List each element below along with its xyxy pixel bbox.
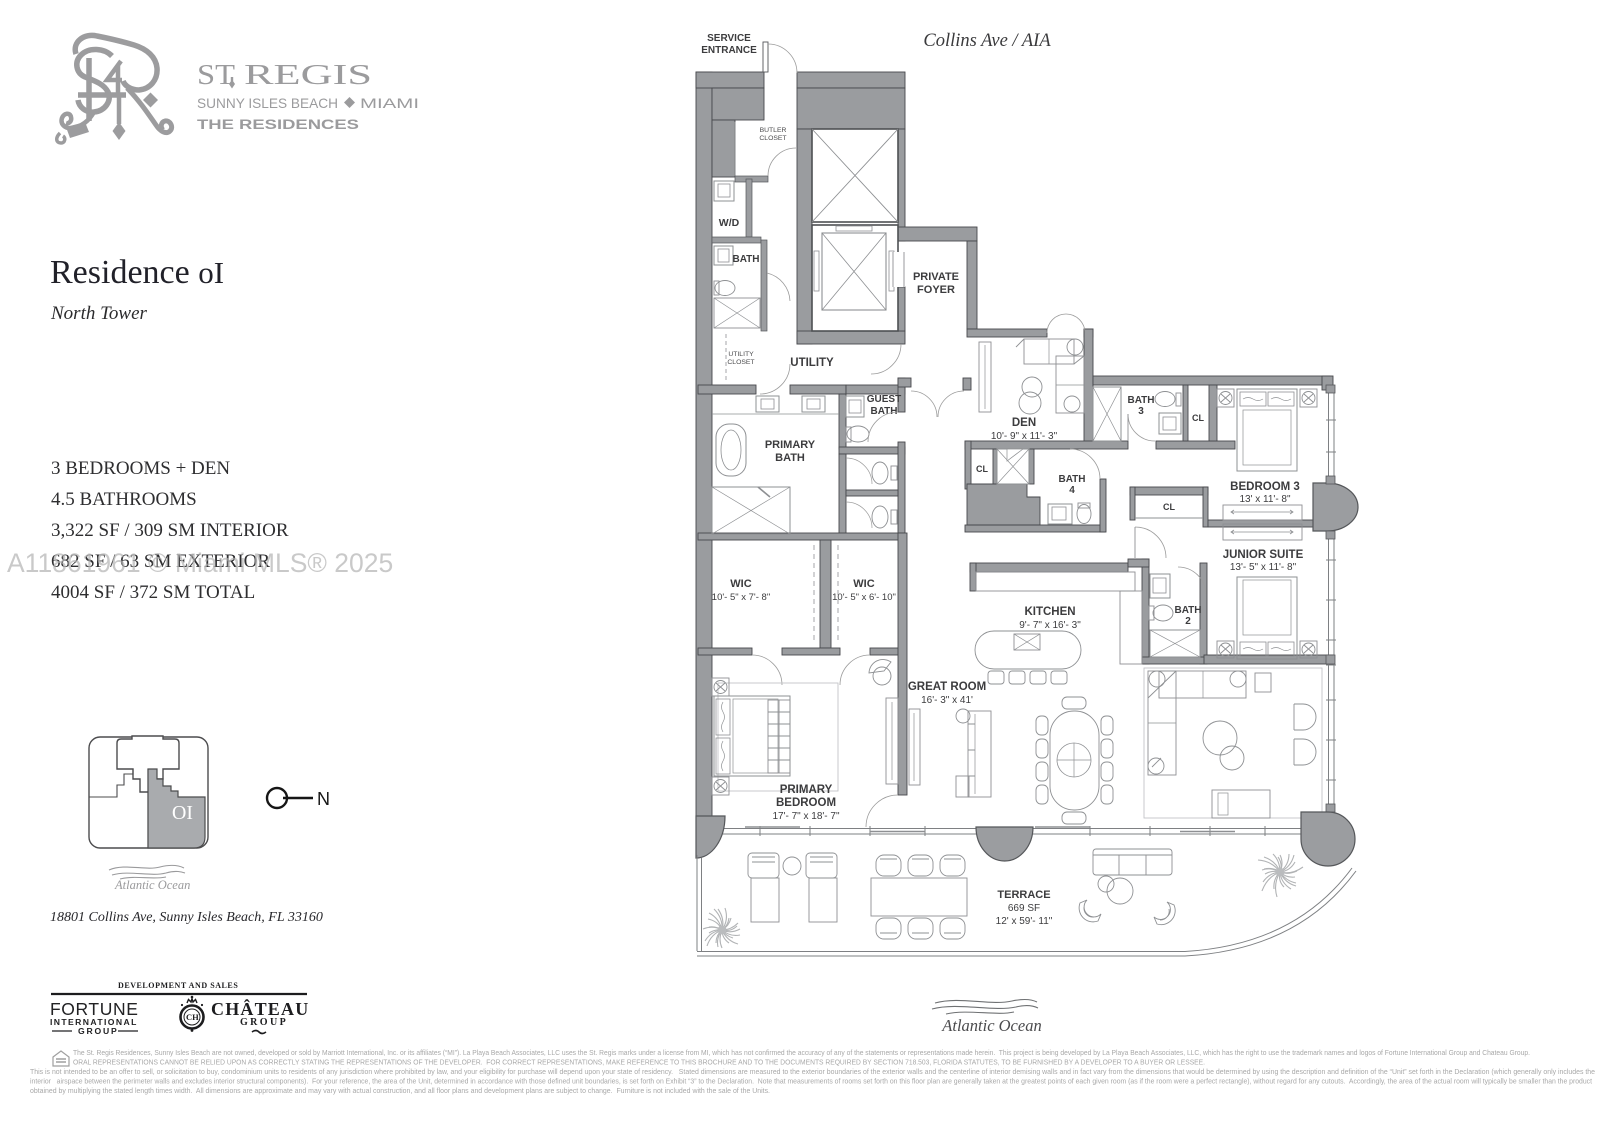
svg-text:MIAMI: MIAMI bbox=[360, 96, 419, 111]
svg-text:Atlantic Ocean: Atlantic Ocean bbox=[114, 878, 190, 892]
svg-text:13'- 5" x 11'- 8": 13'- 5" x 11'- 8" bbox=[1230, 562, 1297, 573]
svg-text:CLOSET: CLOSET bbox=[727, 359, 754, 366]
svg-text:SERVICE: SERVICE bbox=[707, 33, 751, 44]
svg-text:18801 Collins Ave, Sunny Isles: 18801 Collins Ave, Sunny Isles Beach, FL… bbox=[50, 910, 323, 925]
svg-text:Residence oI: Residence oI bbox=[50, 254, 224, 291]
svg-text:N: N bbox=[317, 789, 330, 809]
svg-text:REGIS: REGIS bbox=[244, 60, 372, 91]
svg-text:CL: CL bbox=[1163, 502, 1175, 512]
svg-text:THE RESIDENCES: THE RESIDENCES bbox=[197, 117, 359, 132]
svg-text:CH: CH bbox=[186, 1012, 199, 1022]
svg-text:3: 3 bbox=[1138, 406, 1144, 417]
svg-text:FOYER: FOYER bbox=[917, 284, 955, 296]
svg-text:669 SF: 669 SF bbox=[1008, 903, 1040, 914]
svg-text:CL: CL bbox=[976, 464, 988, 474]
svg-text:12' x 59'- 11": 12' x 59'- 11" bbox=[996, 916, 1053, 927]
svg-text:SUNNY ISLES BEACH: SUNNY ISLES BEACH bbox=[197, 96, 338, 111]
svg-text:BATH: BATH bbox=[1174, 605, 1201, 616]
svg-text:Collins Ave / AIA: Collins Ave / AIA bbox=[923, 31, 1051, 51]
svg-text:GROUP: GROUP bbox=[78, 1026, 119, 1036]
svg-text:4: 4 bbox=[1069, 485, 1075, 496]
svg-text:13' x 11'- 8": 13' x 11'- 8" bbox=[1239, 494, 1291, 505]
svg-text:10'- 9" x 11'- 3": 10'- 9" x 11'- 3" bbox=[991, 431, 1058, 442]
svg-text:3,322 SF / 309 SM INTERIOR: 3,322 SF / 309 SM INTERIOR bbox=[51, 520, 289, 541]
svg-text:PRIMARY: PRIMARY bbox=[780, 784, 833, 796]
svg-text:UTILITY: UTILITY bbox=[790, 357, 834, 369]
svg-text:CHÂTEAU: CHÂTEAU bbox=[211, 998, 309, 1019]
svg-text:JUNIOR SUITE: JUNIOR SUITE bbox=[1223, 549, 1304, 561]
svg-text:4.5 BATHROOMS: 4.5 BATHROOMS bbox=[51, 489, 197, 510]
svg-text:KITCHEN: KITCHEN bbox=[1024, 606, 1075, 618]
svg-text:UTILITY: UTILITY bbox=[728, 351, 754, 358]
svg-text:3 BEDROOMS + DEN: 3 BEDROOMS + DEN bbox=[51, 458, 230, 479]
svg-text:The St. Regis Residences, Sunn: The St. Regis Residences, Sunny Isles Be… bbox=[73, 1048, 1530, 1057]
svg-text:BATH: BATH bbox=[1058, 474, 1085, 485]
svg-text:2: 2 bbox=[1185, 616, 1191, 627]
svg-text:GREAT ROOM: GREAT ROOM bbox=[908, 681, 986, 693]
svg-text:17'- 7" x 18'- 7": 17'- 7" x 18'- 7" bbox=[772, 811, 840, 822]
svg-text:A11861961 © Miami MLS® 2025: A11861961 © Miami MLS® 2025 bbox=[7, 548, 393, 578]
svg-text:BATH: BATH bbox=[1127, 395, 1154, 406]
svg-text:DEVELOPMENT AND SALES: DEVELOPMENT AND SALES bbox=[118, 981, 238, 990]
svg-text:4004 SF / 372 SM TOTAL: 4004 SF / 372 SM TOTAL bbox=[51, 582, 255, 603]
svg-text:ENTRANCE: ENTRANCE bbox=[701, 45, 757, 56]
svg-text:Atlantic Ocean: Atlantic Ocean bbox=[941, 1016, 1041, 1035]
svg-text:CLOSET: CLOSET bbox=[759, 135, 786, 142]
svg-text:W/D: W/D bbox=[719, 217, 740, 229]
svg-text:ST: ST bbox=[197, 60, 235, 91]
svg-text:DEN: DEN bbox=[1012, 417, 1036, 429]
svg-text:16'- 3" x 41': 16'- 3" x 41' bbox=[921, 695, 973, 706]
svg-text:PRIVATE: PRIVATE bbox=[913, 271, 959, 283]
svg-text:WIC: WIC bbox=[730, 578, 751, 590]
svg-text:This is not intended to be an: This is not intended to be an offer to s… bbox=[30, 1067, 1595, 1076]
svg-text:CL: CL bbox=[1192, 413, 1204, 423]
svg-text:GUEST: GUEST bbox=[867, 394, 901, 405]
svg-text:WIC: WIC bbox=[853, 578, 874, 590]
svg-text:9'- 7" x 16'- 3": 9'- 7" x 16'- 3" bbox=[1019, 620, 1081, 631]
svg-text:BATH: BATH bbox=[732, 254, 759, 265]
svg-text:TERRACE: TERRACE bbox=[997, 889, 1050, 901]
svg-text:BEDROOM: BEDROOM bbox=[776, 797, 836, 809]
svg-text:BATH: BATH bbox=[775, 452, 805, 464]
svg-text:PRIMARY: PRIMARY bbox=[765, 439, 816, 451]
svg-text:BEDROOM 3: BEDROOM 3 bbox=[1230, 481, 1300, 493]
svg-text:BUTLER: BUTLER bbox=[760, 127, 787, 134]
svg-text:IO: IO bbox=[172, 801, 193, 823]
svg-text:10'- 5" x 6'- 10": 10'- 5" x 6'- 10" bbox=[832, 592, 896, 603]
svg-text:FORTUNE: FORTUNE bbox=[50, 999, 138, 1019]
svg-text:ORAL REPRESENTATIONS CANNOT BE: ORAL REPRESENTATIONS CANNOT BE RELIED UP… bbox=[73, 1058, 1205, 1067]
svg-text:GROUP: GROUP bbox=[240, 1017, 288, 1028]
svg-text:obtained by multiplying the st: obtained by multiplying the stated lengt… bbox=[30, 1086, 770, 1095]
svg-text:interior airspace between th: interior airspace between the perimeter … bbox=[30, 1077, 1592, 1086]
svg-text:North Tower: North Tower bbox=[50, 303, 148, 324]
svg-text:10'- 5" x 7'- 8": 10'- 5" x 7'- 8" bbox=[712, 592, 770, 603]
